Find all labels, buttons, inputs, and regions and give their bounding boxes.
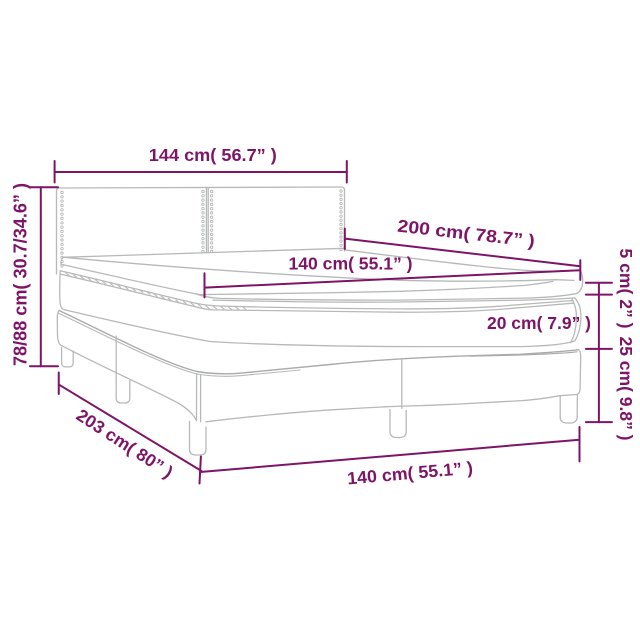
svg-text:140 cm( 55.1” ): 140 cm( 55.1” ) (289, 254, 413, 274)
svg-text:144 cm( 56.7” ): 144 cm( 56.7” ) (149, 145, 277, 165)
svg-text:78/88 cm( 30.7/34.6” ): 78/88 cm( 30.7/34.6” ) (10, 183, 31, 366)
svg-text:203 cm( 80” ): 203 cm( 80” ) (73, 405, 177, 482)
svg-text:200 cm( 78.7” ): 200 cm( 78.7” ) (396, 216, 535, 251)
svg-text:25 cm( 9.8” ): 25 cm( 9.8” ) (616, 337, 636, 441)
svg-text:5 cm( 2” ): 5 cm( 2” ) (616, 249, 636, 329)
svg-text:140 cm( 55.1” ): 140 cm( 55.1” ) (346, 458, 473, 489)
svg-text:20 cm( 7.9” ): 20 cm( 7.9” ) (487, 313, 591, 333)
